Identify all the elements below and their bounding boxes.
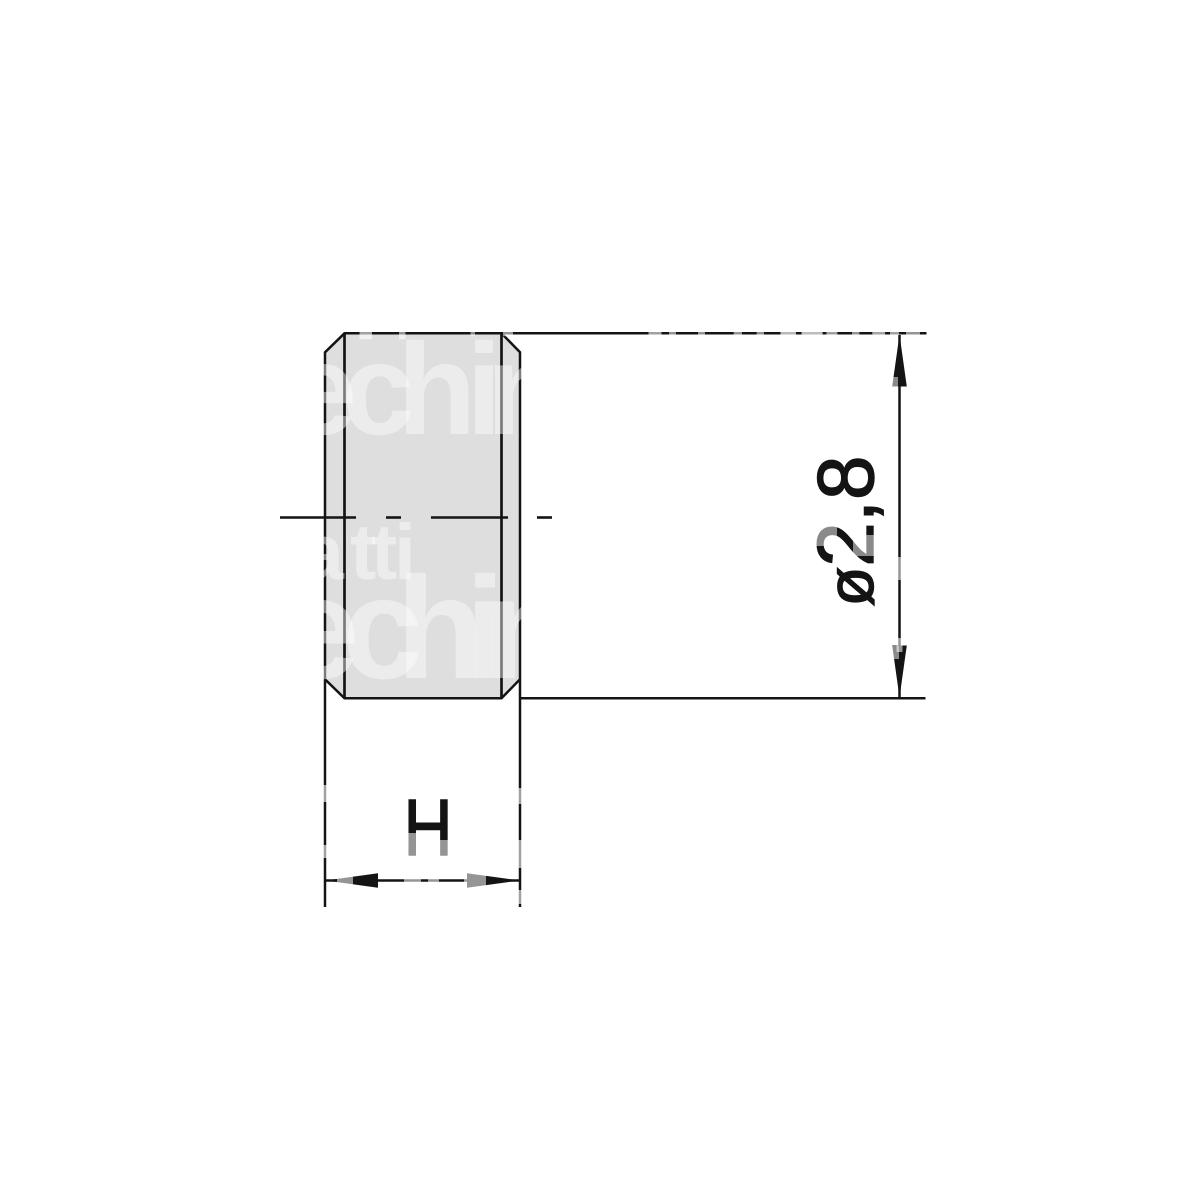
svg-text:n: n [485,547,574,709]
svg-text:n: n [486,316,565,462]
svg-text:H: H [403,783,452,872]
svg-text:h: h [397,316,476,462]
